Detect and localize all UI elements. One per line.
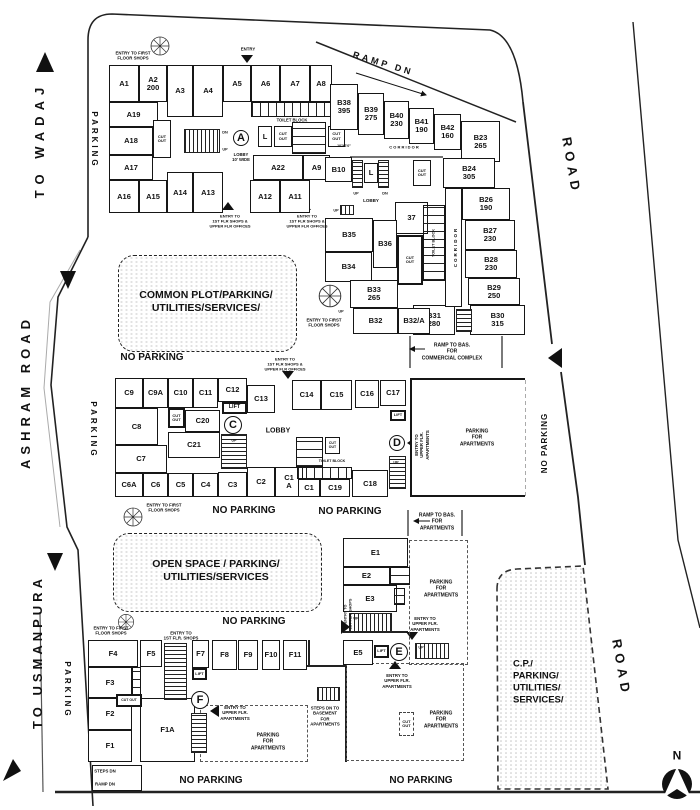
lift: LIFT xyxy=(192,668,207,680)
spiral-stair-icon xyxy=(124,508,142,526)
toilet-stalls xyxy=(297,467,352,479)
lift: LIFT xyxy=(390,410,406,421)
room-f1a: F1A xyxy=(140,698,195,762)
room-b35: B35 xyxy=(325,218,373,252)
text-label: 10'X6'0" xyxy=(337,144,351,148)
cut-out: CUT OUT xyxy=(168,408,185,428)
room-a14: A14 xyxy=(167,172,193,213)
text-label: ENTRY TO UPPER FLR. APARTMENTS xyxy=(382,673,412,689)
text-label: RAMP TO BAS. FOR COMMERCIAL COMPLEX xyxy=(422,343,482,362)
room-b36: B36 xyxy=(373,220,397,268)
block-letter-e: E xyxy=(390,643,408,661)
room-c13: C13 xyxy=(247,385,275,413)
text-label: ENTRY TO 1ST FLR SHOPS & UPPER FLR OFFIC… xyxy=(286,214,327,229)
text-label: NO PARKING xyxy=(212,505,275,518)
room-b33-265: B33 265 xyxy=(350,280,398,308)
text-label: TO USMANPURA xyxy=(30,575,46,729)
room-c17: C17 xyxy=(380,380,406,406)
room-a17: A17 xyxy=(109,155,153,180)
room-a18: A18 xyxy=(109,127,153,155)
entry-arrow xyxy=(241,55,253,63)
text-label: UP xyxy=(231,439,236,444)
room-a13: A13 xyxy=(193,172,223,213)
room-c6: C6 xyxy=(143,473,168,497)
room-b41-190: B41 190 xyxy=(409,108,434,144)
room-b34: B34 xyxy=(325,252,372,282)
toilet-stalls xyxy=(251,102,337,117)
room-c3: C3 xyxy=(218,472,247,497)
room-f9: F9 xyxy=(238,640,258,670)
text-label: UP xyxy=(222,148,227,153)
text-label: UP xyxy=(393,461,398,466)
room-f4: F4 xyxy=(88,640,138,667)
room-a4: A4 xyxy=(193,65,223,117)
room-c16: C16 xyxy=(355,380,379,408)
room-a2-200: A2 200 xyxy=(139,65,167,102)
stair-icon xyxy=(340,205,354,215)
text-label: COMMON PLOT/PARKING/ UTILITIES/SERVICES/ xyxy=(139,289,272,315)
room-b42-160: B42 160 xyxy=(434,114,461,150)
block-letter-d: D xyxy=(389,435,405,451)
text-label: C O R R I D O R xyxy=(389,145,419,150)
text-label: PARKING FOR APARTMENTS xyxy=(424,711,458,730)
room-c11: C11 xyxy=(193,378,218,408)
room-c14: C14 xyxy=(292,380,321,410)
room-b30-315: B30 315 xyxy=(470,305,525,335)
text-label: UP xyxy=(353,192,358,197)
room-c9: C9 xyxy=(115,378,143,408)
room-c20: C20 xyxy=(185,410,220,432)
text-label: ENTRY TO FIRST FLOOR SHOPS xyxy=(93,626,128,637)
toilet-stalls xyxy=(292,122,326,154)
lift: LIFT xyxy=(374,645,389,658)
room-a16: A16 xyxy=(109,180,139,213)
text-label: NO PARKING xyxy=(120,352,183,365)
traffic-arrow-down xyxy=(47,553,63,571)
text-label: PARKING xyxy=(62,661,72,718)
room-a12: A12 xyxy=(250,180,280,213)
entry-arrow xyxy=(222,202,234,210)
text-label: STEPS DN TO BASEMENT FOR APARTMENTS xyxy=(310,705,340,726)
room-f1: F1 xyxy=(88,730,132,762)
text-label: PARKING FOR APARTMENTS xyxy=(251,733,285,752)
text-label: C.P./ PARKING/ UTILITIES/ SERVICES/ xyxy=(513,658,564,706)
room-c10: C10 xyxy=(168,378,193,408)
room-c18: C18 xyxy=(352,470,388,497)
cut-out: CUT OUT xyxy=(413,160,431,186)
cut-out: CUT OUT xyxy=(397,235,423,285)
room-b27-230: B27 230 xyxy=(465,220,515,250)
room-c5: C5 xyxy=(168,473,193,497)
lift: L xyxy=(364,163,378,183)
text-label: LOBBY xyxy=(363,198,379,204)
block-letter-f: F xyxy=(191,691,209,709)
room-c15: C15 xyxy=(321,380,352,410)
room-c1: C1 xyxy=(298,479,320,497)
block-letter-a: A xyxy=(233,130,249,146)
text-label: UP xyxy=(338,310,343,315)
room-c21: C21 xyxy=(168,432,220,458)
room-b10: B10 xyxy=(325,157,352,182)
room-b28-230: B28 230 xyxy=(465,250,517,278)
text-label: ENTRY TO UPPER FLR. APARTMENTS xyxy=(410,616,440,632)
text-label: PARKING xyxy=(89,111,99,168)
room-b32: B32 xyxy=(353,308,398,334)
cut-out: CUT OUT xyxy=(274,126,292,147)
room-a19: A19 xyxy=(109,102,158,127)
stair-icon xyxy=(191,713,207,753)
text-label: PARKING FOR APARTMENTS xyxy=(460,429,494,448)
room-a11: A11 xyxy=(280,180,310,213)
text-label: NO PARKING xyxy=(389,775,452,788)
road-edge-right-outer xyxy=(633,22,700,628)
stair-icon xyxy=(352,160,363,188)
text-label: ENTRY TO 1ST FLR. SHOPS xyxy=(343,599,352,630)
text-label: UP xyxy=(333,209,338,214)
room-e1: E1 xyxy=(343,538,408,567)
toilet-stalls xyxy=(390,567,410,585)
text-label: LOBBY 10' WIDE xyxy=(232,152,250,163)
room-b40-230: B40 230 xyxy=(384,101,409,139)
room-c7: C7 xyxy=(115,445,167,473)
text-label: TO WADAJ xyxy=(32,82,48,198)
stair-icon xyxy=(456,309,472,332)
room-f8: F8 xyxy=(212,640,237,670)
room-c9a: C9A xyxy=(143,378,168,408)
ramp-arrow xyxy=(356,73,426,95)
text-label: DN xyxy=(222,131,227,136)
room-a7: A7 xyxy=(280,65,310,102)
text-label: NO PARKING xyxy=(318,506,381,519)
room-a15: A15 xyxy=(139,180,167,213)
text-label: LOBBY xyxy=(266,428,291,437)
spiral-stair-icon xyxy=(319,285,341,307)
room-b29-250: B29 250 xyxy=(468,278,520,305)
north-compass-icon xyxy=(662,767,692,799)
traffic-arrow-up xyxy=(36,52,54,72)
room-b38-395: B38 395 xyxy=(330,84,358,130)
text-label: DN xyxy=(382,192,387,197)
room-c6a: C6A xyxy=(115,473,143,497)
room-a22: A22 xyxy=(253,155,303,180)
room-c19: C19 xyxy=(320,479,350,497)
room-b39-275: B39 275 xyxy=(358,93,384,135)
text-label: NO PARKING xyxy=(222,616,285,629)
room-a1: A1 xyxy=(109,65,139,102)
cut-out: CUT OUT xyxy=(399,712,414,736)
text-label: UP xyxy=(353,617,358,622)
room-b24-305: B24 305 xyxy=(443,158,495,188)
room-e2: E2 xyxy=(343,567,390,585)
entry-arrow xyxy=(282,371,294,379)
stair-icon xyxy=(378,160,389,188)
text-label: ENTRY TO FIRST FLOOR SHOPS xyxy=(146,503,181,514)
text-label: NO PARKING xyxy=(179,775,242,788)
text-label: RAMP DN xyxy=(95,781,115,786)
text-label: ENTRY TO UPPER FLR. APARTMENTS xyxy=(220,705,250,721)
room-c2: C2 xyxy=(247,467,275,497)
block-letter-c: C xyxy=(224,416,242,434)
toilet-stalls xyxy=(132,667,141,697)
text-label: PARKING FOR APARTMENTS xyxy=(424,580,458,599)
plot-boundary-left xyxy=(51,237,93,806)
room-c12: C12 xyxy=(218,378,247,402)
text-label: ENTRY TO 1ST FLR. SHOPS xyxy=(164,631,199,642)
text-label: N xyxy=(673,749,682,764)
text-label: RAMP TO BAS. FOR APARTMENTS xyxy=(419,513,455,532)
room-a6: A6 xyxy=(251,65,280,102)
text-label: UP xyxy=(418,646,423,651)
text-label: ENTRY TO 1ST FLR SHOPS & UPPER FLR OFFIC… xyxy=(209,214,250,229)
traffic-arrow-left xyxy=(548,348,562,368)
text-label: OPEN SPACE / PARKING/ UTILITIES/SERVICES xyxy=(152,558,279,584)
text-label: TOILET BLOCK xyxy=(277,117,308,122)
stair-icon xyxy=(184,129,220,153)
room-c8: C8 xyxy=(115,408,158,445)
room-a5: A5 xyxy=(223,65,251,102)
text-label: STEPS DN xyxy=(94,768,116,773)
stair-icon xyxy=(164,643,187,700)
text-label: ASHRAM ROAD xyxy=(18,315,34,469)
cut-out: CUT OUT xyxy=(153,120,171,158)
spiral-stair-icon xyxy=(151,37,169,55)
room-e5: E5 xyxy=(343,640,373,665)
room-a3: A3 xyxy=(167,65,193,117)
text-label: ENTRY TO UPPER FLR. APARTMENTS xyxy=(414,430,430,460)
cut-out: CUT OUT xyxy=(116,694,142,707)
lift: L xyxy=(258,126,272,147)
room-c4: C4 xyxy=(193,473,218,497)
cut-out: CUT OUT xyxy=(325,437,340,454)
room-b26-190: B26 190 xyxy=(462,188,510,220)
text-label: ENTRY xyxy=(241,46,255,51)
traffic-arrow-down xyxy=(3,759,21,781)
room-b23-265: B23 265 xyxy=(461,121,500,162)
text-label: PARKING xyxy=(88,401,98,458)
room-f5: F5 xyxy=(140,640,162,667)
room-a8: A8 xyxy=(310,65,332,102)
toilet-stalls xyxy=(394,588,405,605)
text-label: CORRIDOR xyxy=(453,227,459,268)
room-f11: F11 xyxy=(283,640,307,670)
text-label: ENTRY TO FIRST FLOOR SHOPS xyxy=(115,51,150,62)
text-label: NO PARKING xyxy=(540,413,550,474)
room-f7: F7 xyxy=(192,640,209,668)
room-b32-a: B32/A xyxy=(398,308,430,334)
text-label: ENTRY TO FIRST FLOOR SHOPS xyxy=(306,318,341,329)
site-plan: A1A2 200A3A4A5A6A7A8A19A18A17A16A15A14A1… xyxy=(0,0,700,810)
text-label: ENTRY TO 1ST FLR SHOPS & UPPER FLR OFFIC… xyxy=(264,357,305,372)
room-f10: F10 xyxy=(262,640,280,670)
stair-icon xyxy=(317,687,340,701)
lift: LIFT xyxy=(222,402,247,414)
text-label: TOILET BLOCK xyxy=(432,229,437,257)
text-label: TOILET BLOCK xyxy=(319,459,346,463)
